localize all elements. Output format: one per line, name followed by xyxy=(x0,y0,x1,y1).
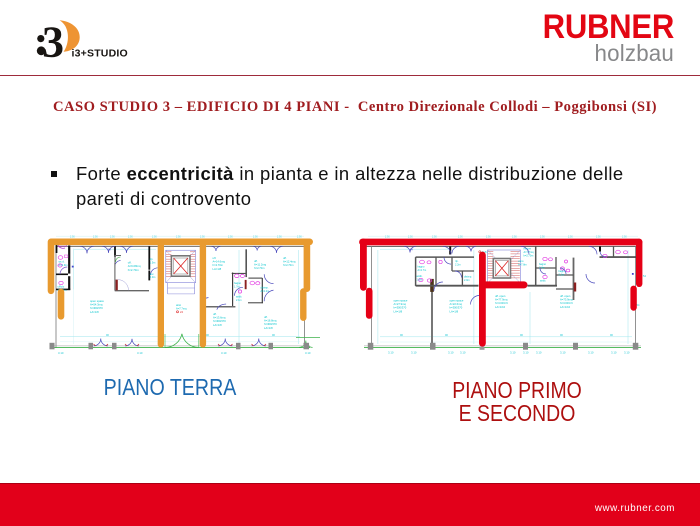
svg-text:A=7.7mq: A=7.7mq xyxy=(176,307,187,311)
svg-text:1.9m: 1.9m xyxy=(417,278,423,281)
svg-text:A=16.8mq: A=16.8mq xyxy=(264,319,277,323)
svg-text:h=300/370: h=300/370 xyxy=(394,306,407,310)
svg-text:A=54.3mq: A=54.3mq xyxy=(90,303,103,307)
svg-text:2.0m: 2.0m xyxy=(150,276,156,279)
svg-text:LA=1/8: LA=1/8 xyxy=(450,309,459,313)
svg-text:3.10: 3.10 xyxy=(388,351,394,355)
svg-text:A=77.9mq: A=77.9mq xyxy=(495,298,508,302)
svg-text:3.10: 3.10 xyxy=(58,351,64,355)
svg-text:3.10: 3.10 xyxy=(221,351,227,355)
svg-text:2.1m: 2.1m xyxy=(559,273,565,276)
svg-text:A=12.4mq: A=12.4mq xyxy=(283,260,296,264)
svg-text:h=300/370: h=300/370 xyxy=(450,306,463,310)
svg-text:uff.: uff. xyxy=(213,256,217,260)
svg-text:h=300/370: h=300/370 xyxy=(213,319,226,323)
svg-text:A=14.6mq: A=14.6mq xyxy=(213,260,226,264)
svg-text:2.1m: 2.1m xyxy=(236,299,242,302)
svg-text:1.5m: 1.5m xyxy=(150,262,156,265)
svg-text:ufficio: ufficio xyxy=(58,285,65,289)
svg-text:LA=1/10: LA=1/10 xyxy=(495,305,506,309)
svg-text:h=300/370: h=300/370 xyxy=(264,322,277,326)
svg-text:A=73.9mq: A=73.9mq xyxy=(560,298,573,302)
svg-text:3.10: 3.10 xyxy=(523,351,529,355)
svg-text:3.10: 3.10 xyxy=(448,351,454,355)
svg-text:A=11.2mq: A=11.2mq xyxy=(254,263,267,267)
svg-text:A=2.9m: A=2.9m xyxy=(59,263,68,267)
svg-text:h=2.70m: h=2.70m xyxy=(524,254,534,257)
svg-text:antib.: antib. xyxy=(540,280,546,283)
svg-text:LA=1/8: LA=1/8 xyxy=(213,323,222,327)
svg-text:A=7.8m: A=7.8m xyxy=(518,263,527,266)
svg-text:A=27.9mq: A=27.9mq xyxy=(394,302,407,306)
svg-text:LA=1/10: LA=1/10 xyxy=(560,305,571,309)
svg-text:uff. open: uff. open xyxy=(560,294,571,298)
svg-text:3.10: 3.10 xyxy=(611,351,617,355)
svg-text:open space: open space xyxy=(450,300,464,303)
svg-text:3: 3 xyxy=(42,18,64,63)
svg-text:h=3.00/3.6: h=3.00/3.6 xyxy=(495,301,508,305)
svg-text:h=2.70m: h=2.70m xyxy=(283,263,294,267)
svg-text:1.7m: 1.7m xyxy=(234,285,240,288)
svg-text:h=2.70m: h=2.70m xyxy=(213,263,224,267)
svg-text:2.2m: 2.2m xyxy=(455,263,461,266)
svg-text:uff.: uff. xyxy=(264,315,268,319)
svg-text:54: 54 xyxy=(643,274,646,278)
svg-text:3.10: 3.10 xyxy=(588,351,594,355)
svg-text:atrio: atrio xyxy=(176,303,182,307)
svg-text:h=3.00/3.6: h=3.00/3.6 xyxy=(560,301,573,305)
svg-text:h=2.70m: h=2.70m xyxy=(128,268,140,272)
svg-text:i3+STUDIO: i3+STUDIO xyxy=(72,47,128,59)
svg-text:h=300/370: h=300/370 xyxy=(90,306,103,310)
svg-text:3.10: 3.10 xyxy=(536,351,542,355)
svg-text:LA=1/8: LA=1/8 xyxy=(213,267,222,271)
svg-text:uff.: uff. xyxy=(283,256,287,260)
svg-text:wc d.: wc d. xyxy=(59,260,65,264)
svg-text:open space: open space xyxy=(90,300,104,303)
svg-text:3.10: 3.10 xyxy=(624,351,630,355)
svg-text:LA=1/8: LA=1/8 xyxy=(90,310,99,314)
svg-text:A=22.6mq: A=22.6mq xyxy=(450,302,463,306)
svg-text:uff. open: uff. open xyxy=(495,294,506,298)
svg-text:h=2.70m: h=2.70m xyxy=(254,266,265,270)
svg-text:A=2.7m: A=2.7m xyxy=(418,269,427,272)
svg-text:2.0m: 2.0m xyxy=(464,279,470,282)
svg-text:uff.: uff. xyxy=(254,259,258,263)
svg-text:A=13.6mq: A=13.6mq xyxy=(213,316,226,320)
svg-text:3.10: 3.10 xyxy=(411,351,417,355)
svg-text:3.10: 3.10 xyxy=(137,351,143,355)
svg-text:LA=1/8: LA=1/8 xyxy=(264,326,273,330)
svg-text:LA=1/8: LA=1/8 xyxy=(394,309,403,313)
svg-text:open space: open space xyxy=(394,300,408,303)
svg-text:3.10: 3.10 xyxy=(305,351,311,355)
svg-text:3.10: 3.10 xyxy=(560,351,566,355)
svg-text:3.10: 3.10 xyxy=(510,351,516,355)
svg-text:uff.: uff. xyxy=(213,312,217,316)
svg-text:3.10: 3.10 xyxy=(460,351,466,355)
